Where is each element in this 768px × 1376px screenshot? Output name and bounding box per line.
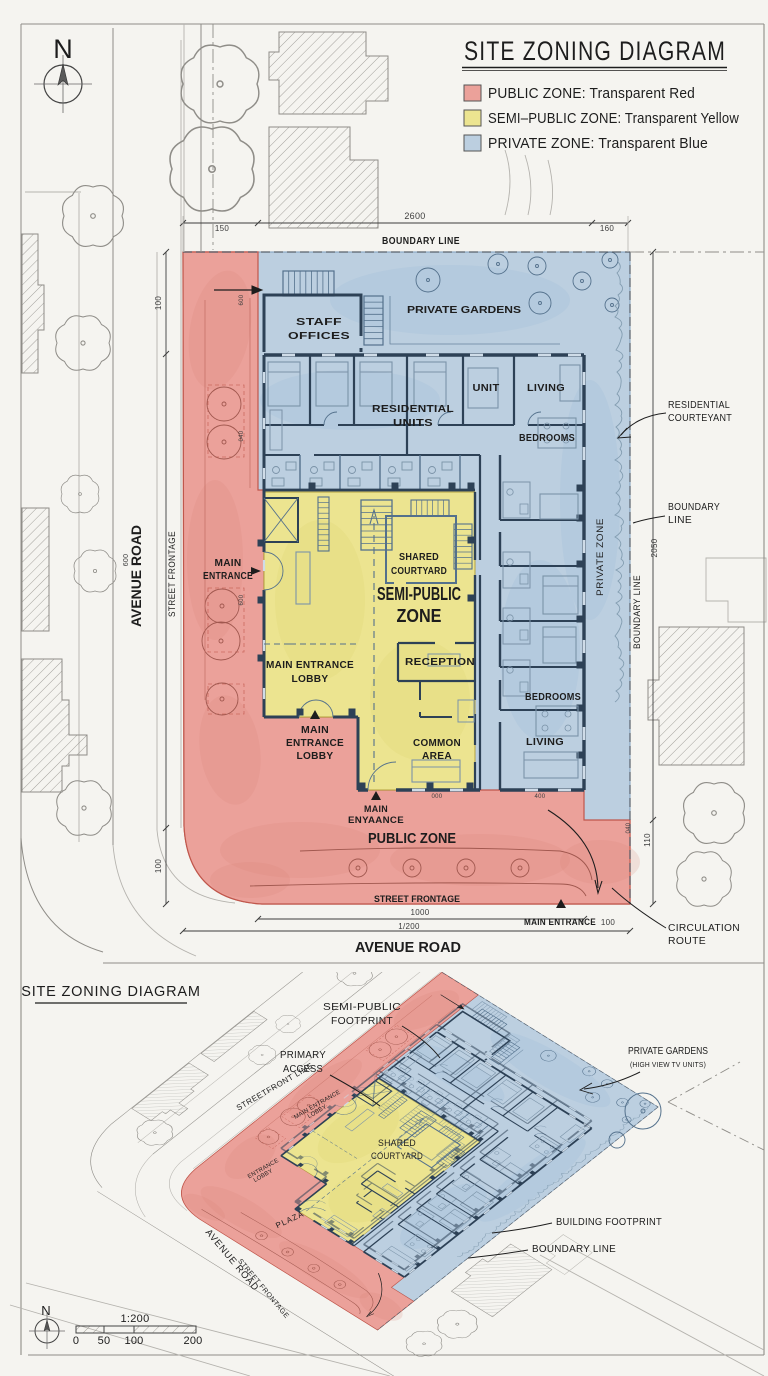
svg-text:ROUTE: ROUTE — [668, 936, 706, 947]
svg-text:600: 600 — [239, 294, 245, 305]
svg-text:ZONE: ZONE — [397, 606, 442, 626]
svg-text:LOBBY: LOBBY — [292, 674, 329, 685]
svg-text:0: 0 — [73, 1335, 79, 1347]
svg-text:1:200: 1:200 — [120, 1313, 149, 1325]
svg-text:COURTYARD: COURTYARD — [371, 1151, 423, 1162]
svg-text:(HIGH VIEW TV UNITS): (HIGH VIEW TV UNITS) — [630, 1060, 706, 1069]
svg-text:FOOTPRINT: FOOTPRINT — [331, 1015, 393, 1027]
svg-text:ENYAANCE: ENYAANCE — [348, 815, 404, 825]
svg-text:RESIDENTIAL: RESIDENTIAL — [372, 404, 454, 415]
svg-text:SITE ZONING DIAGRAM: SITE ZONING DIAGRAM — [21, 984, 201, 1000]
svg-text:COMMON: COMMON — [413, 738, 461, 749]
svg-text:100: 100 — [125, 1335, 144, 1347]
svg-text:STREET FRONTAGE: STREET FRONTAGE — [374, 894, 460, 904]
svg-text:ENTRANCE: ENTRANCE — [286, 738, 344, 749]
svg-text:AVENUE ROAD: AVENUE ROAD — [128, 525, 144, 627]
svg-text:CIRCULATION: CIRCULATION — [668, 923, 740, 934]
svg-text:SEMI–PUBLIC ZONE: Transparent: SEMI–PUBLIC ZONE: Transparent Yellow — [488, 110, 739, 127]
svg-text:150: 150 — [215, 224, 229, 233]
svg-text:RECEPTION: RECEPTION — [405, 657, 475, 668]
svg-text:100: 100 — [154, 296, 163, 310]
svg-text:BOUNDARY: BOUNDARY — [668, 502, 720, 513]
svg-text:1000: 1000 — [411, 908, 430, 917]
svg-text:SEMI-PUBLIC: SEMI-PUBLIC — [377, 584, 461, 604]
svg-text:MAIN: MAIN — [301, 725, 329, 736]
svg-text:PRIMARY: PRIMARY — [280, 1049, 326, 1061]
svg-text:AVENUE ROAD: AVENUE ROAD — [355, 940, 461, 956]
svg-text:PRIVATE ZONE: Transparent Blue: PRIVATE ZONE: Transparent Blue — [488, 135, 708, 152]
svg-text:BEDROOMS: BEDROOMS — [525, 692, 581, 703]
svg-text:600: 600 — [239, 594, 245, 605]
svg-text:MAIN: MAIN — [215, 558, 242, 569]
svg-text:PUBLIC ZONE: PUBLIC ZONE — [368, 831, 456, 847]
svg-text:PUBLIC ZONE: Transparent Red: PUBLIC ZONE: Transparent Red — [488, 85, 695, 102]
svg-text:2600: 2600 — [404, 211, 425, 221]
svg-text:PRIVATE GARDENS: PRIVATE GARDENS — [407, 305, 521, 316]
svg-text:STREET FRONTAGE: STREET FRONTAGE — [167, 531, 177, 617]
svg-text:ENTRANCE: ENTRANCE — [203, 571, 253, 582]
svg-text:50: 50 — [98, 1335, 111, 1347]
svg-text:SHARED: SHARED — [399, 552, 439, 563]
svg-text:040: 040 — [239, 430, 245, 441]
svg-text:040: 040 — [626, 822, 632, 833]
svg-text:AREA: AREA — [422, 751, 452, 762]
svg-text:LIVING: LIVING — [527, 383, 565, 394]
svg-text:LOBBY: LOBBY — [297, 751, 334, 762]
svg-text:BOUNDARY LINE: BOUNDARY LINE — [382, 236, 460, 247]
svg-text:110: 110 — [643, 833, 652, 847]
svg-text:BUILDING FOOTPRINT: BUILDING FOOTPRINT — [556, 1216, 662, 1228]
svg-text:400: 400 — [535, 794, 546, 800]
svg-text:PRIVATE ZONE: PRIVATE ZONE — [595, 518, 606, 596]
svg-text:PRIVATE GARDENS: PRIVATE GARDENS — [628, 1045, 708, 1057]
svg-text:UNITS: UNITS — [393, 418, 433, 429]
svg-text:SEMI-PUBLIC: SEMI-PUBLIC — [323, 1001, 401, 1013]
svg-text:BOUNDARY LINE: BOUNDARY LINE — [532, 1243, 616, 1255]
svg-text:100: 100 — [154, 859, 163, 873]
svg-text:MAIN ENTRANCE: MAIN ENTRANCE — [524, 917, 596, 927]
svg-text:UNIT: UNIT — [473, 383, 501, 394]
svg-text:COURTEYANT: COURTEYANT — [668, 413, 732, 424]
svg-text:RESIDENTIAL: RESIDENTIAL — [668, 400, 730, 411]
svg-text:000: 000 — [432, 794, 443, 800]
svg-text:STAFF: STAFF — [296, 317, 342, 328]
svg-text:BOUNDARY LINE: BOUNDARY LINE — [632, 575, 643, 649]
svg-text:100: 100 — [601, 918, 615, 927]
svg-text:OFFICES: OFFICES — [288, 331, 350, 342]
svg-text:MAIN ENTRANCE: MAIN ENTRANCE — [266, 660, 354, 671]
svg-text:MAIN: MAIN — [364, 804, 388, 814]
svg-text:LINE: LINE — [668, 515, 692, 526]
svg-text:2050: 2050 — [650, 538, 659, 557]
svg-text:LIVING: LIVING — [526, 737, 564, 748]
svg-text:BEDROOMS: BEDROOMS — [519, 433, 575, 444]
svg-text:1/200: 1/200 — [398, 922, 420, 931]
svg-text:SHARED: SHARED — [378, 1138, 416, 1149]
svg-text:200: 200 — [184, 1335, 203, 1347]
svg-text:160: 160 — [600, 224, 614, 233]
svg-text:N: N — [41, 1303, 50, 1318]
svg-text:SITE ZONING DIAGRAM: SITE ZONING DIAGRAM — [464, 36, 726, 66]
svg-text:COURTYARD: COURTYARD — [391, 566, 447, 577]
